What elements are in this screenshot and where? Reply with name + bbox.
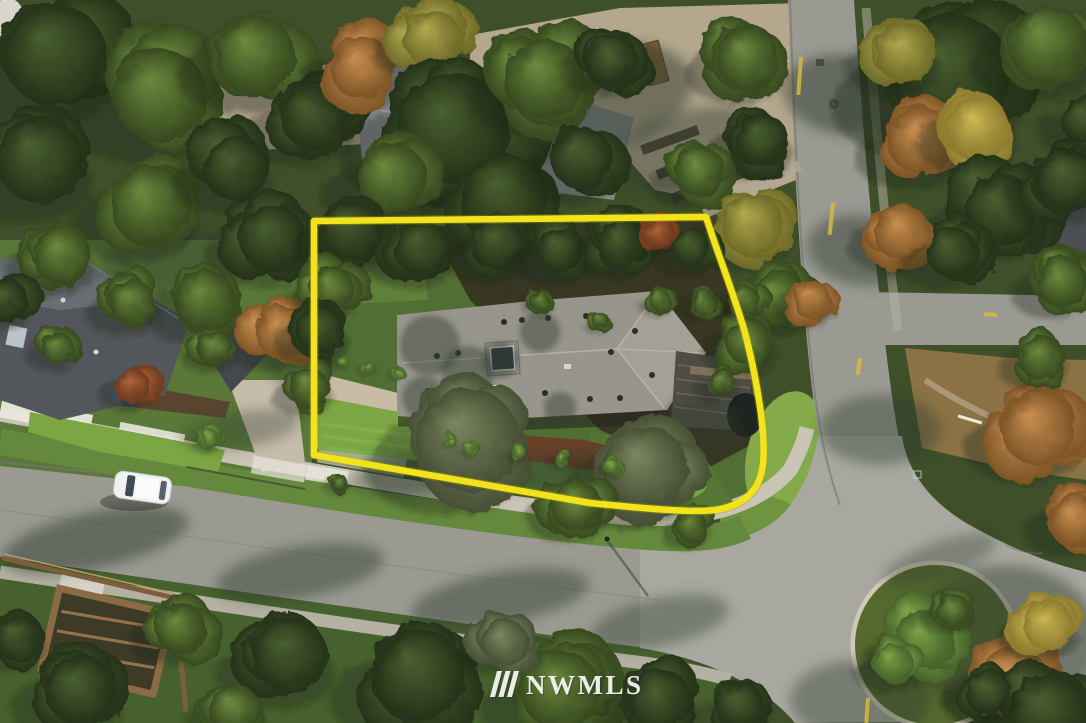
- nwmls-watermark-text: NWMLS: [526, 670, 644, 700]
- neighbor-roof-vent-1: [61, 298, 66, 303]
- street-vault: [816, 59, 824, 66]
- nwmls-watermark: NWMLS NWMLS: [490, 670, 645, 702]
- car-roof: [135, 476, 160, 500]
- pole-base: [605, 537, 610, 542]
- aerial-photo-canvas: NWMLS NWMLS: [0, 0, 1086, 723]
- aerial-photo: NWMLS NWMLS: [0, 0, 1086, 723]
- neighbor-roof-vent-3: [94, 350, 99, 355]
- roof-vent-box-2: [564, 364, 571, 369]
